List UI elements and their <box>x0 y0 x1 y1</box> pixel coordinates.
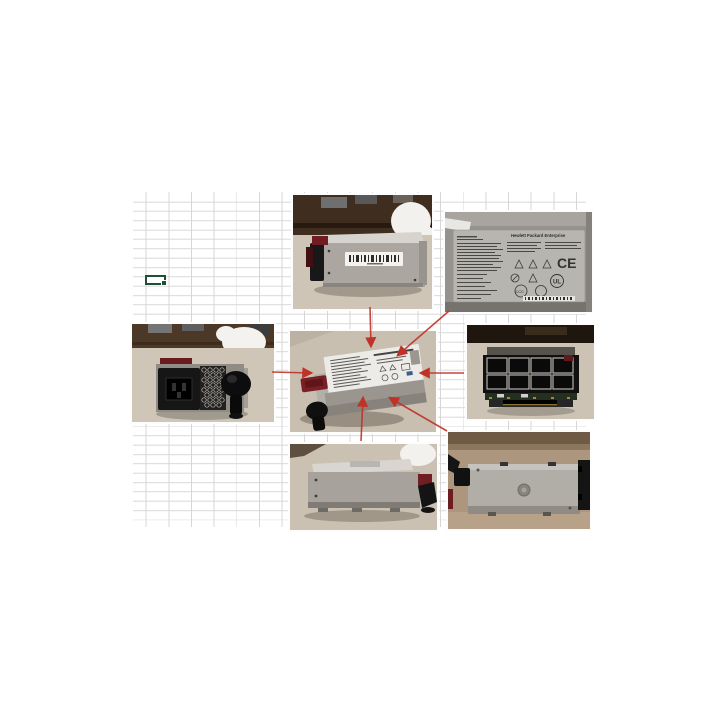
fill-handle[interactable] <box>161 280 167 286</box>
red-release-tab <box>312 236 328 245</box>
red-strip <box>448 489 453 509</box>
photo-bottom-side-svg <box>290 444 437 530</box>
photo-front-view[interactable] <box>465 323 596 421</box>
red-tab <box>564 355 573 361</box>
psu-top-edge <box>487 347 575 356</box>
psu-side-face <box>308 472 420 506</box>
background-object <box>321 197 347 208</box>
photo-flat-top-view[interactable] <box>446 430 592 531</box>
photo-label-closeup[interactable]: Hewlett Packard Enterprise <box>443 210 594 314</box>
shadow <box>487 406 575 416</box>
worksheet-canvas: Hewlett Packard Enterprise <box>0 0 724 724</box>
photo-top-side-view[interactable] <box>291 193 434 311</box>
photo-rear-svg <box>132 324 274 422</box>
photo-rear-view[interactable] <box>130 322 276 424</box>
photo-center-overview[interactable] <box>288 329 438 434</box>
photo-bottom-side-view[interactable] <box>288 442 439 532</box>
brand-text: Hewlett Packard Enterprise <box>511 233 566 238</box>
ce-mark: CE <box>557 255 576 271</box>
photo-top-side-svg <box>293 195 432 309</box>
photo-flat-svg <box>448 432 590 529</box>
photo-label-svg: Hewlett Packard Enterprise <box>445 212 592 312</box>
black-handle-knob <box>221 371 251 397</box>
ul-mark: UL <box>553 280 561 286</box>
selected-cell[interactable] <box>145 275 166 285</box>
photo-front-svg <box>467 325 594 419</box>
photo-center-svg <box>290 331 436 432</box>
ccc-mark: CCC <box>516 289 525 294</box>
blue-mark <box>406 371 412 376</box>
